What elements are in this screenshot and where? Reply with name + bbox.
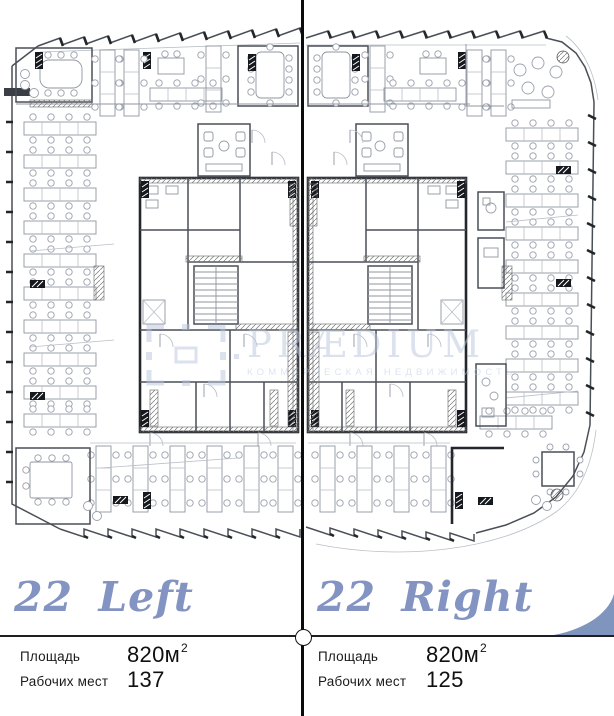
- corner-swoosh: [548, 594, 614, 637]
- right-area-label: Площадь: [318, 649, 378, 664]
- left-half-plan: [16, 44, 301, 524]
- left-seats-label: Рабочих мест: [20, 674, 108, 689]
- right-unit-title: 22 Right: [317, 573, 533, 621]
- right-half-plan: [308, 44, 583, 524]
- left-area-value: 820м2: [127, 642, 187, 668]
- center-divider-line: [301, 0, 304, 716]
- right-area-value: 820м2: [426, 642, 486, 668]
- floor-plan-drawing: [0, 0, 614, 570]
- right-seats-value: 125: [426, 667, 464, 693]
- left-rule: [0, 635, 296, 637]
- right-seats-label: Рабочих мест: [318, 674, 406, 689]
- floor-plan-page: { "watermark": { "brand": "PRÆDIUM", "ta…: [0, 0, 614, 716]
- right-rule: [310, 635, 614, 637]
- divider-node-circle: [295, 629, 312, 646]
- left-unit-title: 22 Left: [14, 573, 194, 621]
- left-area-label: Площадь: [20, 649, 80, 664]
- left-seats-value: 137: [127, 667, 165, 693]
